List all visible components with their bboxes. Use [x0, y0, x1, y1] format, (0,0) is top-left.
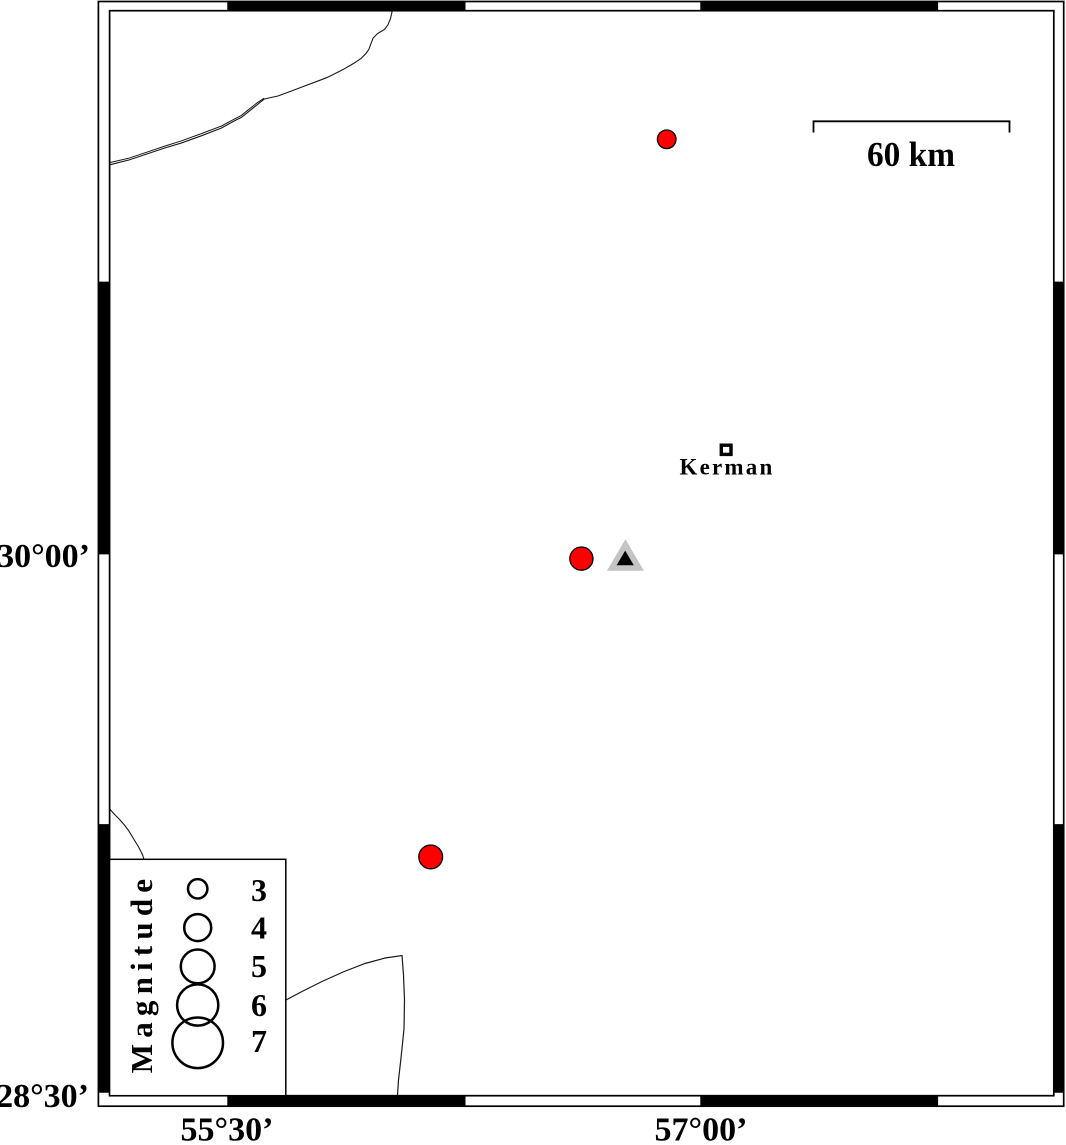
- svg-text:55°30’: 55°30’: [181, 1112, 274, 1145]
- svg-text:3: 3: [251, 872, 267, 908]
- svg-text:60 km: 60 km: [867, 135, 955, 174]
- svg-text:57°00’: 57°00’: [655, 1112, 748, 1145]
- svg-text:28°30’: 28°30’: [0, 1078, 89, 1115]
- svg-text:5: 5: [251, 948, 267, 984]
- svg-text:7: 7: [251, 1023, 267, 1059]
- svg-text:Kerman: Kerman: [680, 455, 775, 480]
- svg-text:4: 4: [251, 910, 267, 946]
- svg-text:Magnitude: Magnitude: [124, 873, 159, 1073]
- svg-text:6: 6: [251, 987, 267, 1023]
- svg-text:30°00’: 30°00’: [0, 538, 90, 575]
